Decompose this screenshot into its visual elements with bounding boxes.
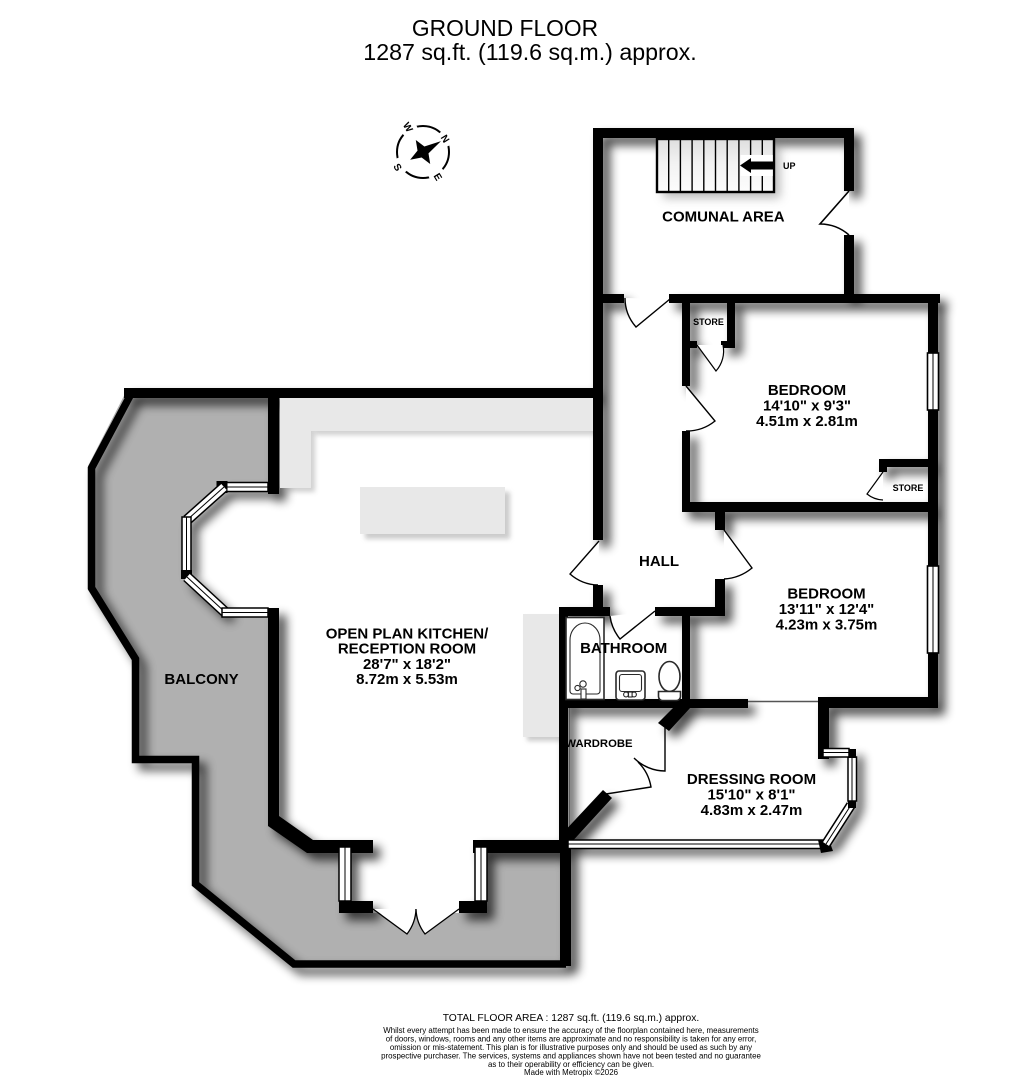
svg-text:BATHROOM: BATHROOM (580, 640, 667, 657)
svg-text:WARDROBE: WARDROBE (565, 738, 633, 750)
svg-text:GROUND FLOOR: GROUND FLOOR (412, 15, 598, 41)
svg-text:BALCONY: BALCONY (164, 671, 238, 688)
svg-text:HALL: HALL (639, 553, 679, 570)
svg-text:STORE: STORE (693, 317, 724, 327)
svg-text:STORE: STORE (893, 483, 924, 493)
svg-text:TOTAL FLOOR AREA : 1287 sq.ft.: TOTAL FLOOR AREA : 1287 sq.ft. (119.6 sq… (443, 1013, 700, 1024)
svg-text:1287 sq.ft. (119.6 sq.m.) appr: 1287 sq.ft. (119.6 sq.m.) approx. (363, 39, 696, 65)
svg-text:8.72m x 5.53m: 8.72m x 5.53m (356, 671, 458, 688)
svg-text:4.23m x 3.75m: 4.23m x 3.75m (776, 616, 878, 633)
svg-text:UP: UP (783, 161, 796, 171)
svg-text:4.51m x 2.81m: 4.51m x 2.81m (756, 413, 858, 430)
svg-text:COMUNAL AREA: COMUNAL AREA (662, 209, 785, 226)
svg-text:4.83m x 2.47m: 4.83m x 2.47m (701, 802, 803, 819)
svg-text:Made with Metropix ©2026: Made with Metropix ©2026 (524, 1068, 619, 1077)
